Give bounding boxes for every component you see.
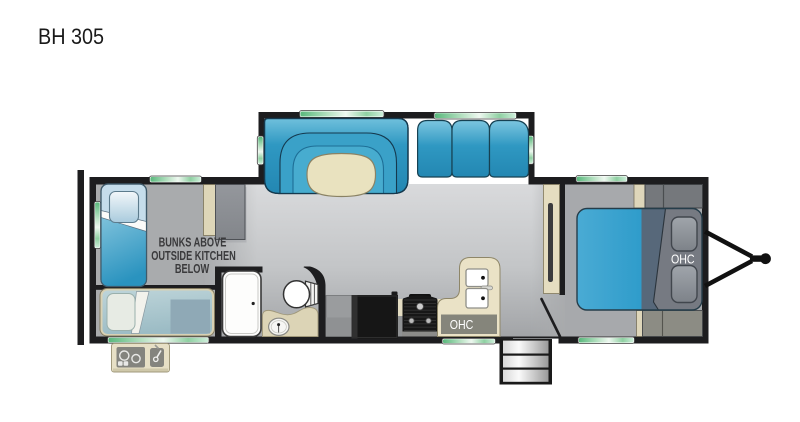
svg-text:OUTSIDE KITCHEN: OUTSIDE KITCHEN (151, 249, 236, 263)
svg-text:BH 305: BH 305 (38, 25, 104, 49)
svg-text:OHC: OHC (671, 253, 695, 267)
svg-text:BELOW: BELOW (175, 263, 210, 277)
svg-text:BUNKS ABOVE: BUNKS ABOVE (159, 236, 227, 250)
svg-text:OHC: OHC (450, 318, 474, 332)
